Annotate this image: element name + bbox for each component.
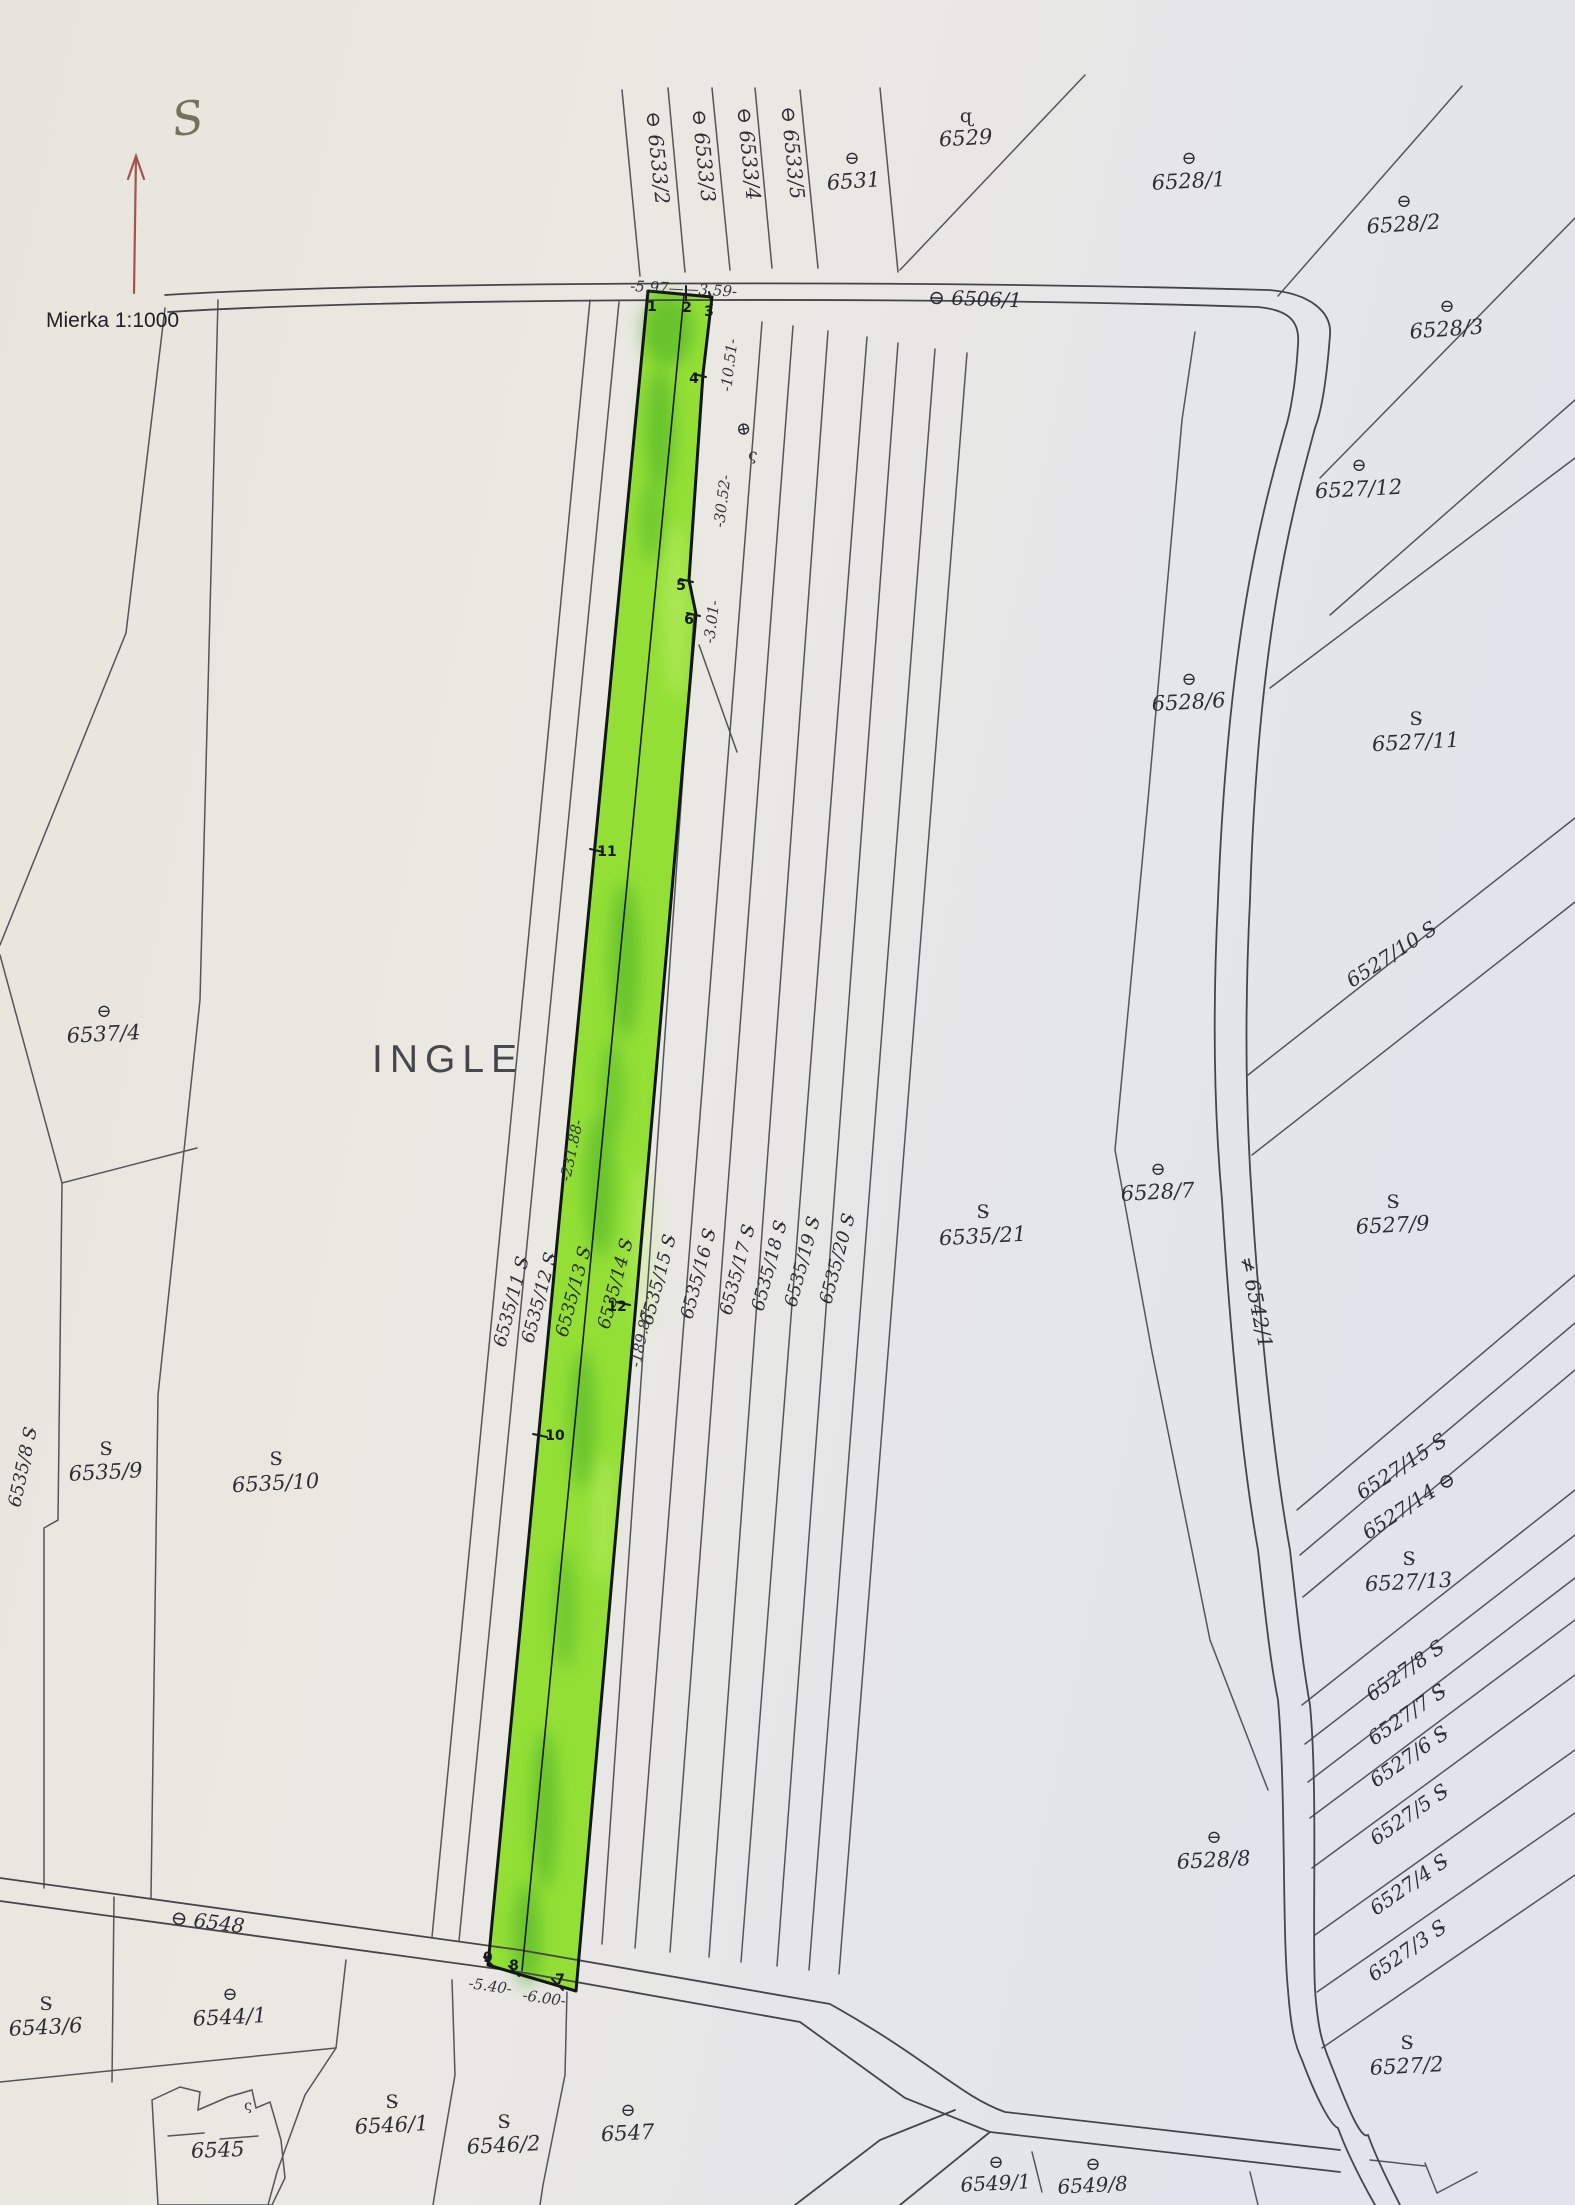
cadastral-map-svg: SMierka 1:1000INGLE⊖ 6533/2⊖ 6533/3⊖ 653… bbox=[0, 0, 1575, 2205]
point-5: 5 bbox=[676, 578, 686, 594]
parcel-label-6535-10: 6535/10 bbox=[231, 1469, 319, 1498]
symbol-6527-11: S̵ bbox=[1409, 708, 1422, 730]
parcel-label-6528-7: 6528/7 bbox=[1120, 1178, 1196, 1206]
symbol-6528-6: ⊖ bbox=[1181, 669, 1196, 690]
parcel-label-6528-1: 6528/1 bbox=[1151, 167, 1226, 195]
symbol-6535-9: S̵ bbox=[99, 1438, 112, 1460]
symbol-6546-2: S̵ bbox=[497, 2111, 510, 2133]
scale-label: Mierka 1:1000 bbox=[46, 309, 179, 332]
parcel-label-6506-1: ⊖ 6506/1 bbox=[928, 285, 1022, 312]
symbol-6527-2: S̵ bbox=[1400, 2032, 1413, 2054]
symbol-6535-10: S̵ bbox=[269, 1448, 282, 1470]
symbol-6528-8: ⊖ bbox=[1206, 1827, 1221, 1848]
area-name: INGLE bbox=[372, 1038, 524, 1081]
point-3: 3 bbox=[704, 304, 714, 320]
symbol-6537-4: ⊖ bbox=[96, 1001, 111, 1022]
parcel-label-6527-11: 6527/11 bbox=[1371, 728, 1459, 757]
parcel-label-6544-1: 6544/1 bbox=[192, 2003, 267, 2031]
paper-background bbox=[0, 0, 1575, 2205]
parcel-label-6528-2: 6528/2 bbox=[1366, 209, 1441, 238]
point-12: 12 bbox=[607, 1299, 626, 1315]
point-1: 1 bbox=[647, 299, 657, 315]
symbol-6531: ⊖ bbox=[844, 148, 859, 169]
parcel-label-6527-12: 6527/12 bbox=[1314, 475, 1402, 504]
parcel-label-6528-6: 6528/6 bbox=[1151, 688, 1226, 716]
parcel-label-6545: 6545 bbox=[191, 2137, 245, 2163]
parcel-label-6529: 6529 bbox=[938, 125, 993, 152]
symbol-6528-3: ⊖ bbox=[1439, 296, 1454, 317]
parcel-label-6531: 6531 bbox=[826, 167, 881, 195]
parcel-label-6546-2: 6546/2 bbox=[466, 2131, 541, 2159]
symbol-6546-1: S̵ bbox=[385, 2091, 398, 2113]
parcel-label-6535-9: 6535/9 bbox=[68, 1458, 143, 1486]
symbol-6528-1: ⊖ bbox=[1181, 148, 1196, 169]
symbol-6527-12: ⊖ bbox=[1351, 455, 1366, 476]
point-10: 10 bbox=[545, 1428, 565, 1444]
symbol-6547: ⊖ bbox=[620, 2100, 635, 2121]
parcel-label-6546-1: 6546/1 bbox=[354, 2111, 429, 2139]
symbol-6544-1: ⊖ bbox=[222, 1984, 237, 2005]
parcel-label-6527-13: 6527/13 bbox=[1364, 1568, 1452, 1597]
parcel-label-6549-1: 6549/1 bbox=[960, 2169, 1032, 2197]
symbol-6528-2: ⊖ bbox=[1396, 191, 1411, 212]
point-11: 11 bbox=[597, 844, 616, 860]
parcel-label-6528-8: 6528/8 bbox=[1176, 1846, 1251, 1874]
symbol-6535-21: S̵ bbox=[976, 1201, 989, 1223]
parcel-label-6549-8: 6549/8 bbox=[1057, 2171, 1129, 2199]
parcel-label-6535-21: 6535/21 bbox=[938, 1222, 1026, 1251]
parcel-label-6547: 6547 bbox=[600, 2120, 655, 2147]
symbol-6527-9: S̵ bbox=[1386, 1191, 1399, 1213]
parcel-label-6528-3: 6528/3 bbox=[1409, 314, 1484, 343]
point-4: 4 bbox=[689, 371, 699, 387]
parcel-label-6527-2: 6527/2 bbox=[1369, 2052, 1444, 2080]
point-6: 6 bbox=[684, 612, 694, 628]
parcel-label-6527-9: 6527/9 bbox=[1355, 1211, 1430, 1239]
parcel-label-6543-6: 6543/6 bbox=[8, 2013, 83, 2041]
point-2: 2 bbox=[682, 300, 692, 316]
symbol-6528-7: ⊖ bbox=[1150, 1159, 1165, 1180]
symbol-6543-6: S̵ bbox=[39, 1993, 52, 2015]
symbol-6527-13: S̵ bbox=[1402, 1548, 1415, 1570]
scanned-map-page: SMierka 1:1000INGLE⊖ 6533/2⊖ 6533/3⊖ 653… bbox=[0, 0, 1575, 2205]
point-9: 9 bbox=[483, 1950, 493, 1966]
symbol-sigma-2: ς bbox=[244, 2098, 252, 2114]
parcel-label-6537-4: 6537/4 bbox=[66, 1020, 141, 1048]
point-8: 8 bbox=[509, 1958, 519, 1974]
point-7: 7 bbox=[555, 1972, 565, 1988]
